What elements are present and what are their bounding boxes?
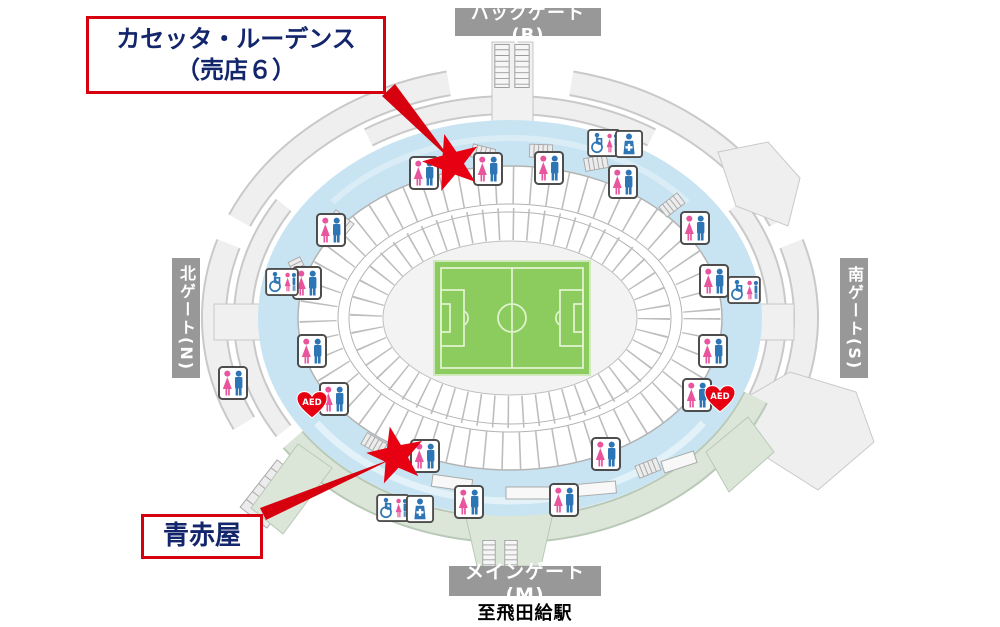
callout-aoakaya: 青赤屋 — [141, 514, 263, 559]
accessible-toilet-icon — [266, 269, 298, 295]
aed-label: AED — [710, 392, 729, 402]
accessible-toilet-icon — [377, 495, 409, 521]
aed-label: AED — [302, 398, 321, 408]
stadium-guide-map: AED AED カセッタ・ルーデンス （売店６） 青赤屋 バックゲート(B) 北… — [0, 0, 1000, 627]
callout-shop6-line1: カセッタ・ルーデンス — [116, 24, 356, 55]
toilet-icon — [535, 152, 563, 184]
toilet-icon — [609, 166, 637, 198]
toilet-icon — [550, 484, 578, 516]
toilet-icon — [298, 335, 326, 367]
toilet-icon — [592, 438, 620, 470]
callout-shop6: カセッタ・ルーデンス （売店６） — [86, 16, 386, 94]
south-gate-label: 南ゲート(S) — [840, 258, 868, 378]
toilet-icon — [219, 367, 247, 399]
north-gate-label: 北ゲート(N) — [172, 258, 200, 378]
north-gate-connector — [214, 304, 260, 340]
toilet-icon — [455, 486, 483, 518]
first-aid-icon — [407, 496, 433, 522]
callout-aoakaya-label: 青赤屋 — [163, 520, 241, 554]
accessible-toilet-icon — [728, 277, 760, 303]
pitch — [434, 261, 590, 375]
callout-shop6-line2: （売店６） — [176, 55, 296, 86]
station-direction-label: 至飛田給駅 — [450, 599, 600, 625]
back-gate-connector — [492, 42, 533, 128]
main-gate-label: メインゲート(M) — [449, 566, 601, 596]
toilet-icon — [681, 212, 709, 244]
first-aid-icon — [616, 131, 642, 157]
back-gate-label: バックゲート(B) — [455, 8, 601, 36]
toilet-icon — [474, 153, 502, 185]
toilet-icon — [700, 265, 728, 297]
toilet-icon — [699, 335, 727, 367]
toilet-icon — [317, 214, 345, 246]
